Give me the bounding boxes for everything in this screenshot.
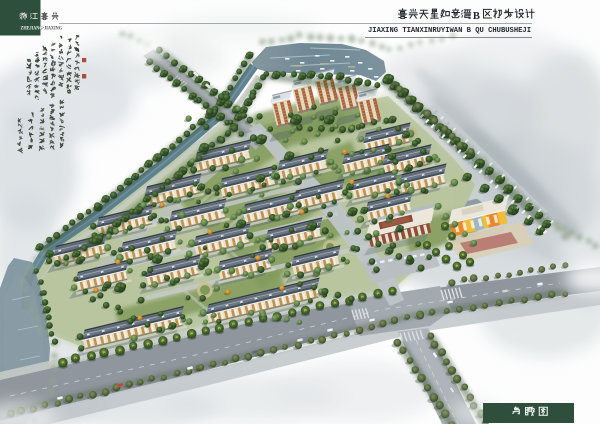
svg-text:B: B: [473, 11, 480, 22]
svg-text:JIAXING TIANXINRUYIWAN B QU CH: JIAXING TIANXINRUYIWAN B QU CHUBUSHEJI: [368, 27, 531, 35]
